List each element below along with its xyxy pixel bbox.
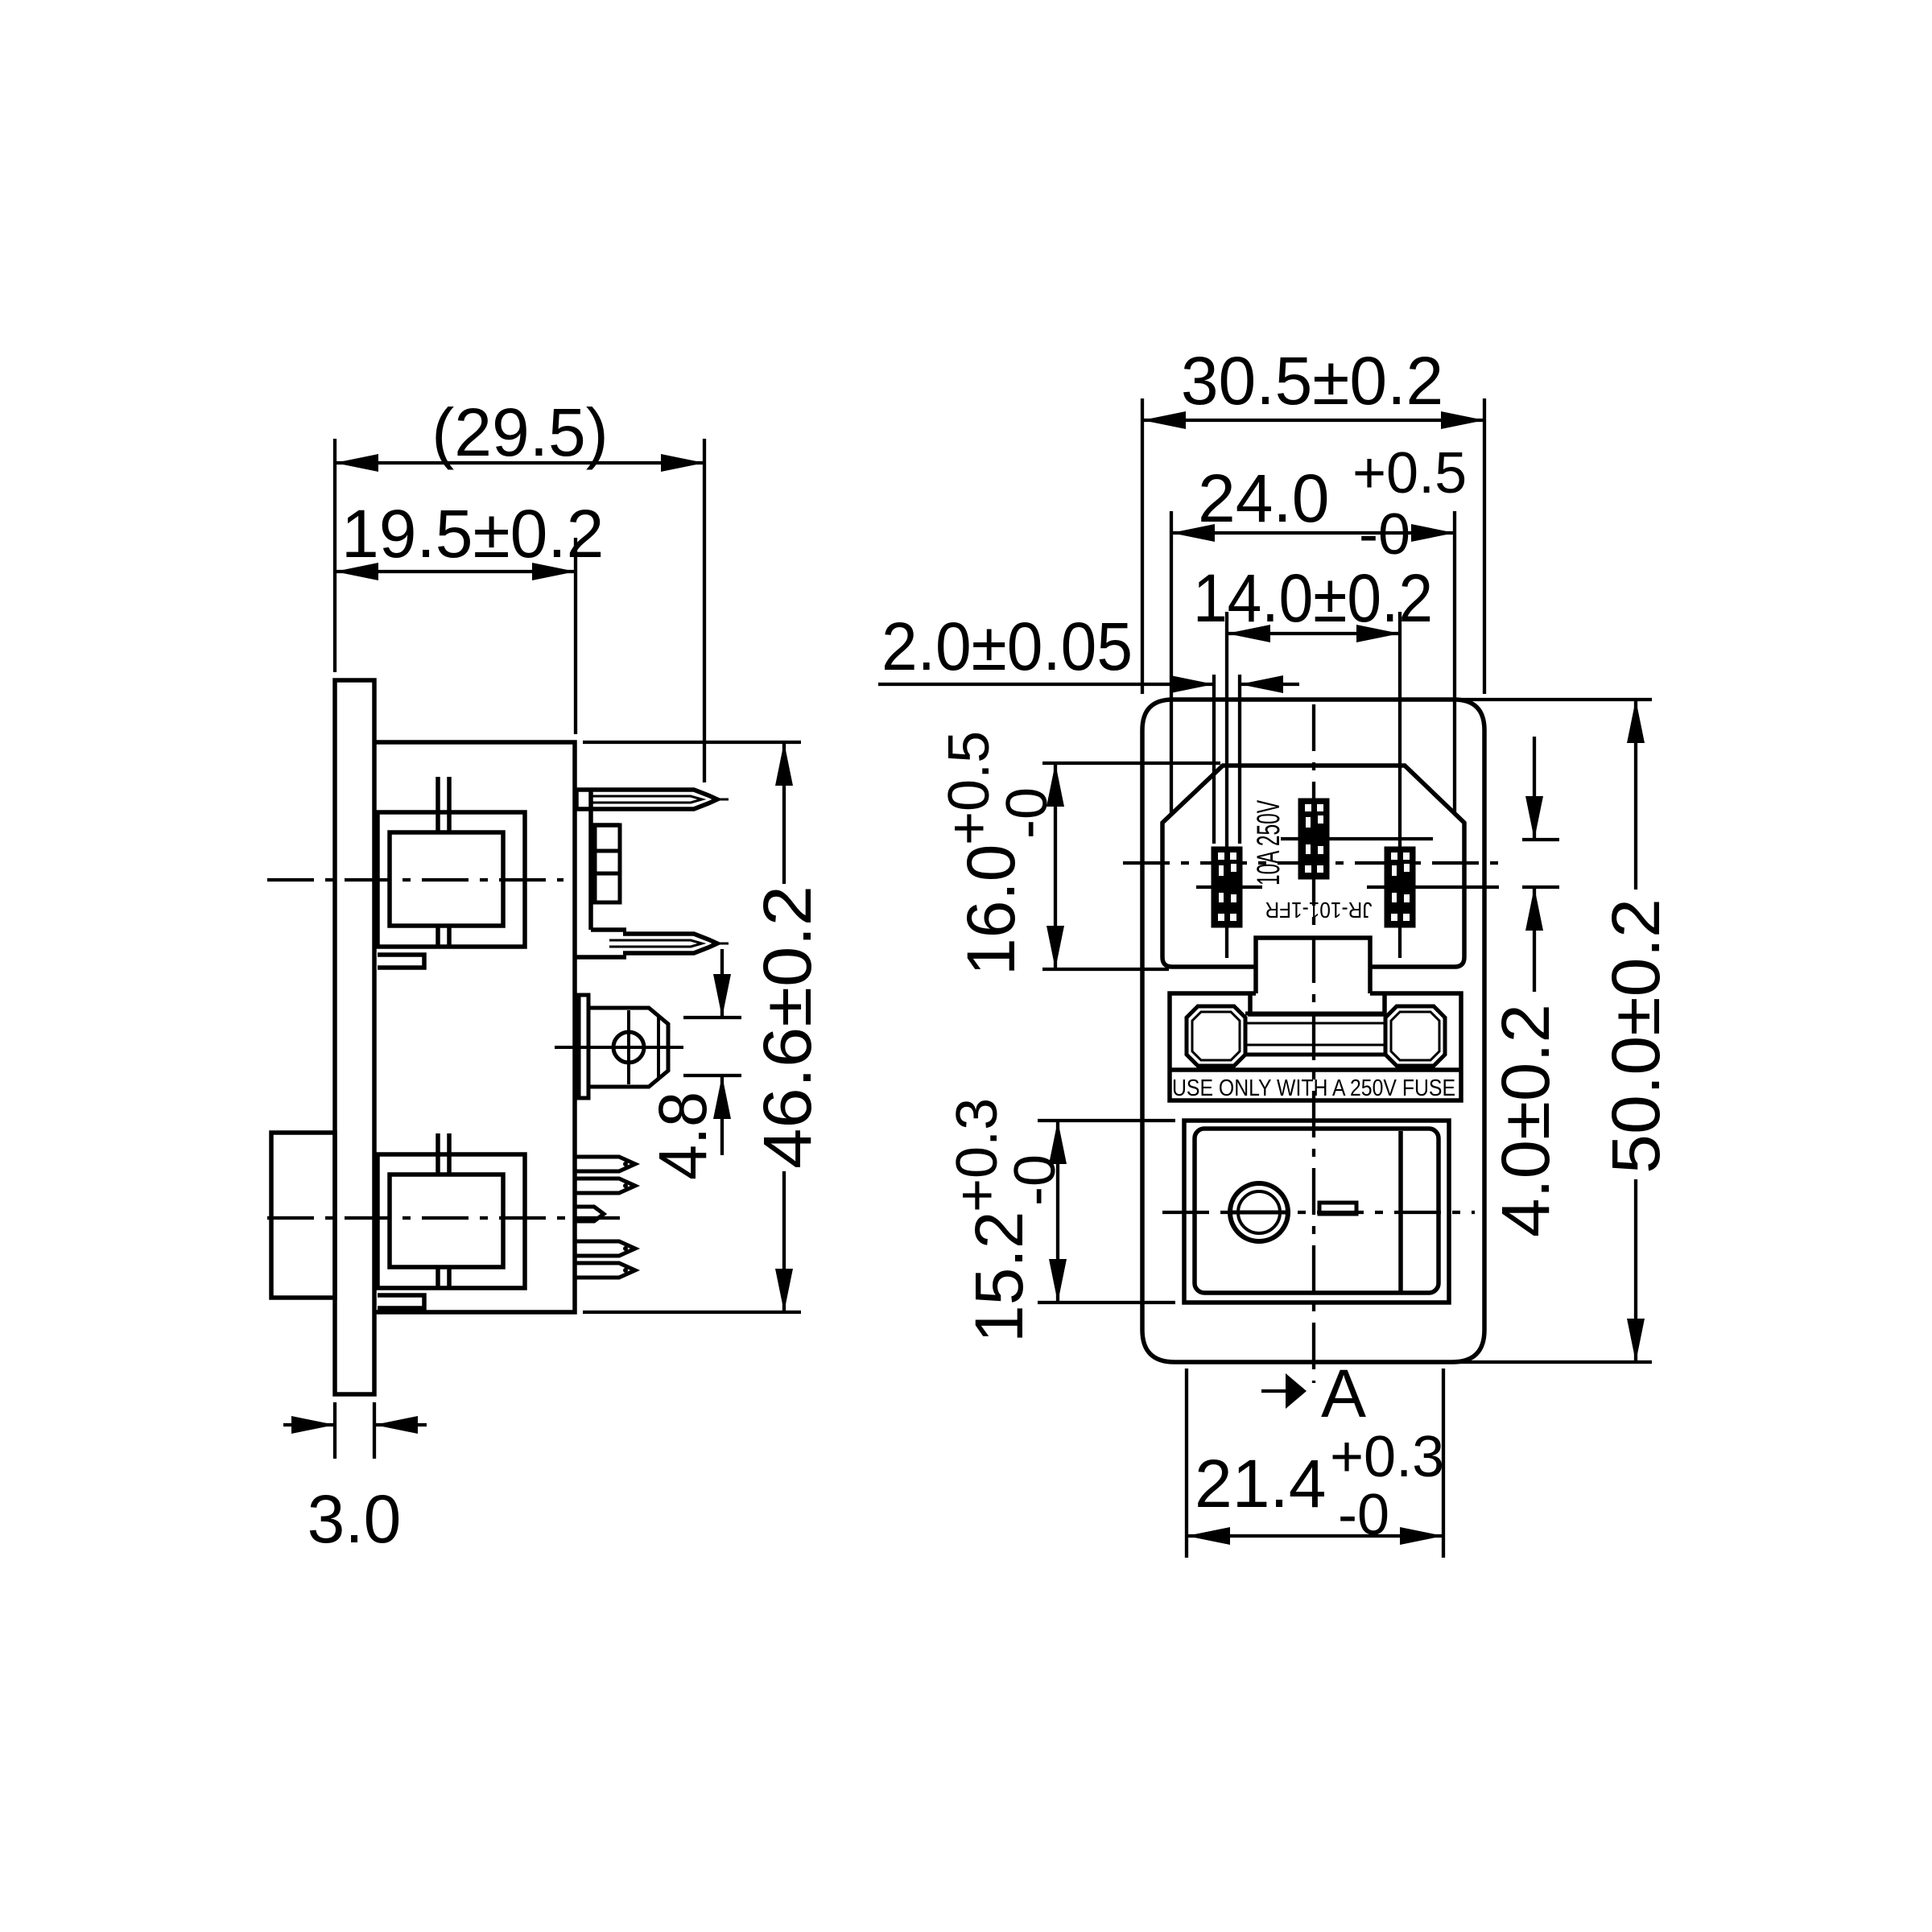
- svg-text:+0.5: +0.5: [937, 731, 1001, 845]
- svg-text:30.5±0.2: 30.5±0.2: [1181, 343, 1443, 419]
- svg-text:50.0±0.2: 50.0±0.2: [1598, 898, 1674, 1174]
- svg-text:24.0: 24.0: [1198, 460, 1330, 536]
- svg-text:10A 250V: 10A 250V: [1251, 800, 1286, 885]
- svg-text:(29.5): (29.5): [431, 394, 608, 470]
- svg-text:4.8: 4.8: [645, 1092, 720, 1180]
- svg-text:15.2: 15.2: [961, 1212, 1037, 1344]
- svg-text:+0.5: +0.5: [1352, 441, 1467, 506]
- svg-text:19.5±0.2: 19.5±0.2: [341, 496, 604, 572]
- svg-text:46.6±0.2: 46.6±0.2: [749, 885, 825, 1169]
- svg-text:3.0: 3.0: [308, 1481, 402, 1557]
- svg-text:-0: -0: [1338, 1483, 1389, 1547]
- svg-text:JR-101-1FR: JR-101-1FR: [1265, 898, 1373, 923]
- svg-text:A: A: [1321, 1356, 1366, 1431]
- svg-text:-0: -0: [1003, 1154, 1067, 1206]
- svg-text:14.0±0.2: 14.0±0.2: [1193, 560, 1433, 636]
- svg-text:+0.3: +0.3: [945, 1098, 1009, 1212]
- svg-text:21.4: 21.4: [1195, 1446, 1327, 1521]
- svg-text:16.0: 16.0: [953, 844, 1029, 976]
- svg-text:2.0±0.05: 2.0±0.05: [881, 609, 1133, 684]
- svg-text:-0: -0: [995, 787, 1059, 839]
- svg-text:+0.3: +0.3: [1330, 1425, 1444, 1489]
- svg-text:4.0±0.2: 4.0±0.2: [1488, 1004, 1563, 1237]
